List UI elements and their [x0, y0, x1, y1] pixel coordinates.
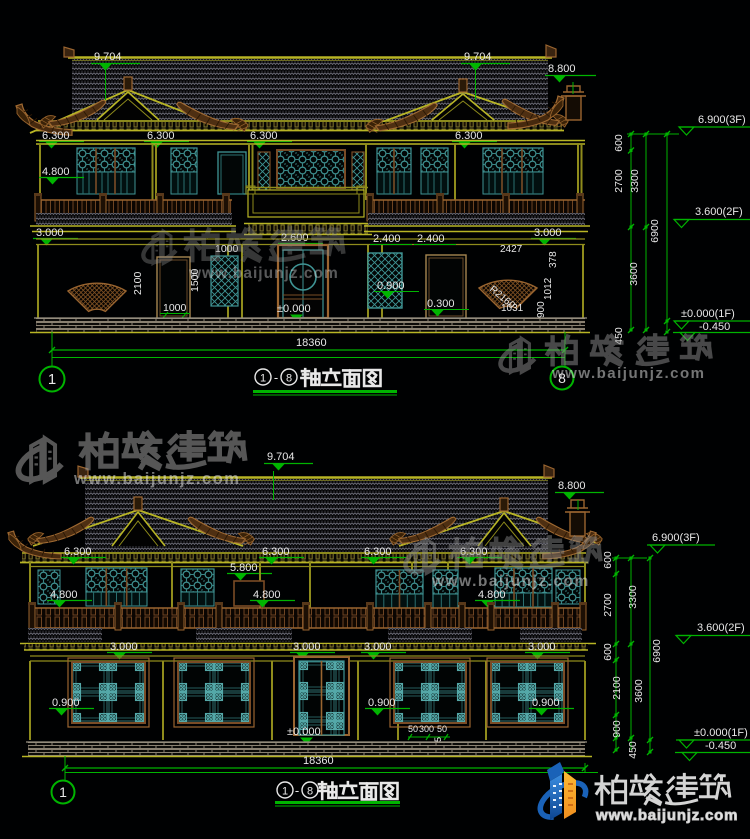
- svg-text:9.704: 9.704: [94, 51, 122, 63]
- svg-text:900: 900: [611, 720, 623, 738]
- svg-text:0.900: 0.900: [368, 697, 396, 709]
- svg-text:3.000: 3.000: [293, 641, 321, 653]
- svg-text:3.600(2F): 3.600(2F): [695, 206, 743, 218]
- svg-text:6900: 6900: [649, 219, 661, 243]
- svg-text:2.400: 2.400: [417, 233, 445, 245]
- svg-text:2100: 2100: [611, 676, 623, 700]
- svg-text:300: 300: [419, 724, 434, 734]
- svg-text:8.800: 8.800: [548, 63, 576, 75]
- svg-text:3.600(2F): 3.600(2F): [697, 622, 745, 634]
- svg-text:3300: 3300: [627, 585, 639, 609]
- svg-text:8: 8: [307, 786, 313, 798]
- svg-text:-0.450: -0.450: [699, 321, 730, 333]
- svg-text:9.704: 9.704: [464, 51, 492, 63]
- svg-text:450: 450: [627, 741, 639, 759]
- svg-text:6.300: 6.300: [364, 546, 392, 558]
- svg-text:3600: 3600: [633, 679, 645, 703]
- svg-text:www.baijunjz.com: www.baijunjz.com: [188, 265, 339, 282]
- svg-text:3600: 3600: [628, 262, 640, 286]
- svg-text:1: 1: [48, 371, 56, 388]
- svg-text:50: 50: [408, 724, 418, 734]
- svg-text:6.900(3F): 6.900(3F): [652, 532, 700, 544]
- svg-text:www.baijunjz.com: www.baijunjz.com: [595, 807, 738, 824]
- svg-text:4.800: 4.800: [42, 166, 70, 178]
- svg-text:9.704: 9.704: [267, 451, 295, 463]
- svg-text:±0.000(1F): ±0.000(1F): [681, 308, 735, 320]
- svg-text:-: -: [274, 370, 278, 385]
- svg-text:1000: 1000: [163, 302, 187, 314]
- svg-text:6.300: 6.300: [64, 546, 92, 558]
- svg-text:2.400: 2.400: [373, 233, 401, 245]
- svg-text:18360: 18360: [303, 755, 334, 767]
- svg-text:2100: 2100: [132, 271, 144, 295]
- svg-text:5.800: 5.800: [230, 562, 258, 574]
- svg-text:±0.000: ±0.000: [277, 303, 311, 315]
- svg-text:3.000: 3.000: [364, 641, 392, 653]
- svg-text:3.000: 3.000: [36, 227, 64, 239]
- svg-text:-: -: [295, 783, 299, 798]
- svg-text:±0.000: ±0.000: [287, 726, 321, 738]
- svg-text:2700: 2700: [602, 593, 614, 617]
- svg-text:900: 900: [536, 301, 547, 318]
- svg-text:1012: 1012: [543, 277, 554, 300]
- svg-text:4.800: 4.800: [478, 589, 506, 601]
- svg-text:4.800: 4.800: [253, 589, 281, 601]
- svg-text:8.800: 8.800: [558, 480, 586, 492]
- svg-text:50: 50: [437, 724, 447, 734]
- svg-text:www.baijunjz.com: www.baijunjz.com: [73, 470, 240, 488]
- svg-text:-0.450: -0.450: [705, 740, 736, 752]
- svg-text:18360: 18360: [296, 337, 327, 349]
- svg-text:www.baijunjz.com: www.baijunjz.com: [551, 365, 705, 382]
- svg-text:3.000: 3.000: [528, 641, 556, 653]
- svg-text:0.900: 0.900: [377, 280, 405, 292]
- svg-text:378: 378: [548, 251, 559, 268]
- svg-text:6.300: 6.300: [262, 546, 290, 558]
- svg-text:www.baijunjz.com: www.baijunjz.com: [431, 573, 590, 590]
- svg-text:6900: 6900: [651, 639, 663, 663]
- svg-text:3.000: 3.000: [110, 641, 138, 653]
- svg-text:3.000: 3.000: [534, 227, 562, 239]
- svg-text:2427: 2427: [500, 244, 523, 255]
- svg-text:600: 600: [613, 134, 625, 152]
- svg-text:2700: 2700: [613, 169, 625, 193]
- svg-text:0.900: 0.900: [532, 697, 560, 709]
- svg-text:±0.000(1F): ±0.000(1F): [694, 727, 748, 739]
- svg-text:1: 1: [260, 373, 266, 385]
- svg-text:4.800: 4.800: [50, 589, 78, 601]
- svg-text:0.300: 0.300: [427, 298, 455, 310]
- svg-text:600: 600: [602, 643, 614, 661]
- svg-text:1031: 1031: [501, 303, 524, 314]
- svg-text:0.900: 0.900: [52, 697, 80, 709]
- svg-text:1: 1: [59, 784, 67, 800]
- svg-text:3300: 3300: [629, 169, 641, 193]
- svg-text:8: 8: [286, 373, 292, 385]
- svg-text:1: 1: [282, 786, 288, 798]
- svg-text:600: 600: [602, 551, 614, 569]
- svg-text:6.900(3F): 6.900(3F): [698, 114, 746, 126]
